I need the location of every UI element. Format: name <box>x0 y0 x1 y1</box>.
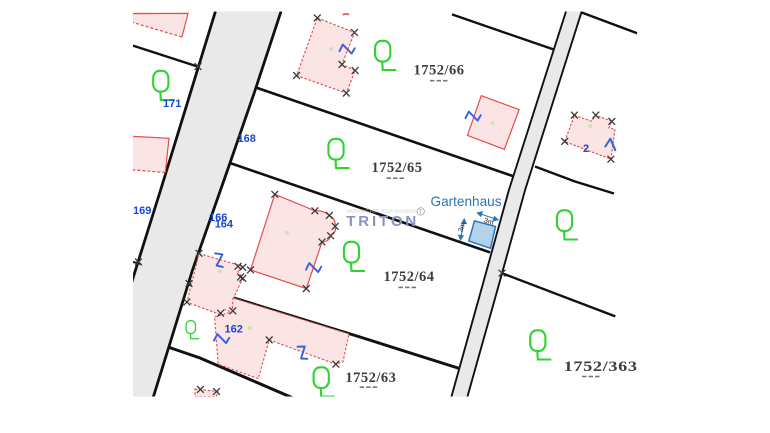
svg-text:1752/66: 1752/66 <box>414 63 465 79</box>
svg-text:1752/63: 1752/63 <box>345 370 396 386</box>
svg-text:171: 171 <box>163 98 181 110</box>
svg-text:164: 164 <box>215 219 234 231</box>
svg-text:2: 2 <box>583 143 589 155</box>
svg-text:T: T <box>419 210 423 216</box>
svg-text:1752/363: 1752/363 <box>564 359 638 375</box>
svg-text:TRITON: TRITON <box>346 213 419 230</box>
svg-text:Gartenhaus: Gartenhaus <box>431 194 502 209</box>
svg-text:162: 162 <box>225 324 243 336</box>
svg-text:1752/64: 1752/64 <box>384 269 435 285</box>
svg-text:168: 168 <box>238 133 256 145</box>
svg-text:169: 169 <box>133 205 151 217</box>
svg-text:1752/65: 1752/65 <box>372 160 423 176</box>
